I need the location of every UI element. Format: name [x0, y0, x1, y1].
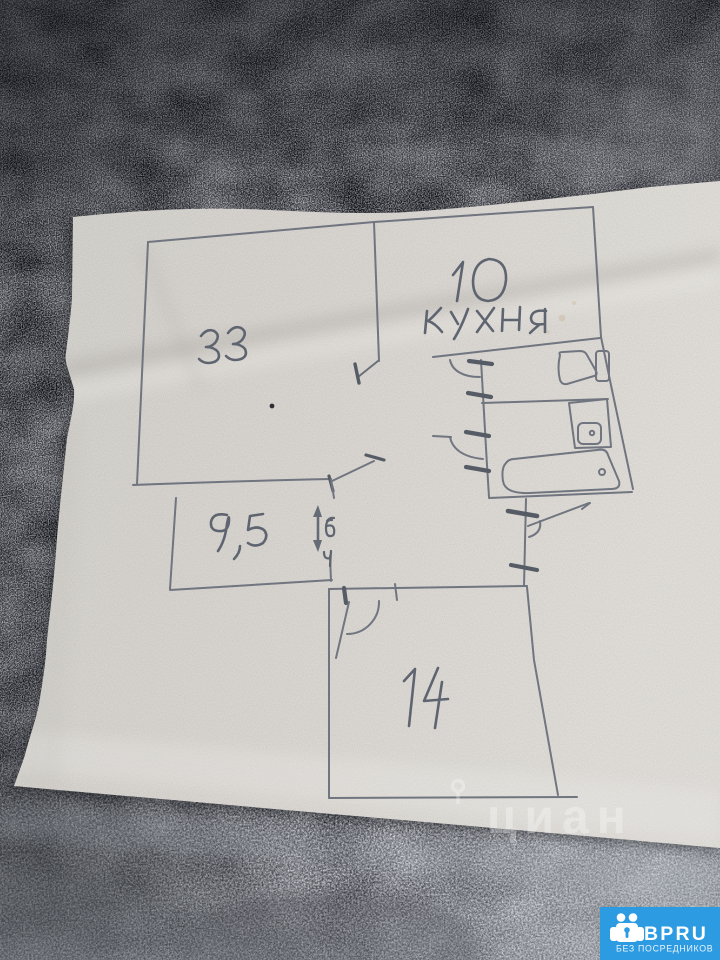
svg-text:BPRU: BPRU — [644, 923, 708, 945]
svg-text:БЕЗ ПОСРЕДНИКОВ: БЕЗ ПОСРЕДНИКОВ — [616, 944, 713, 954]
svg-text:циан: циан — [487, 791, 634, 844]
